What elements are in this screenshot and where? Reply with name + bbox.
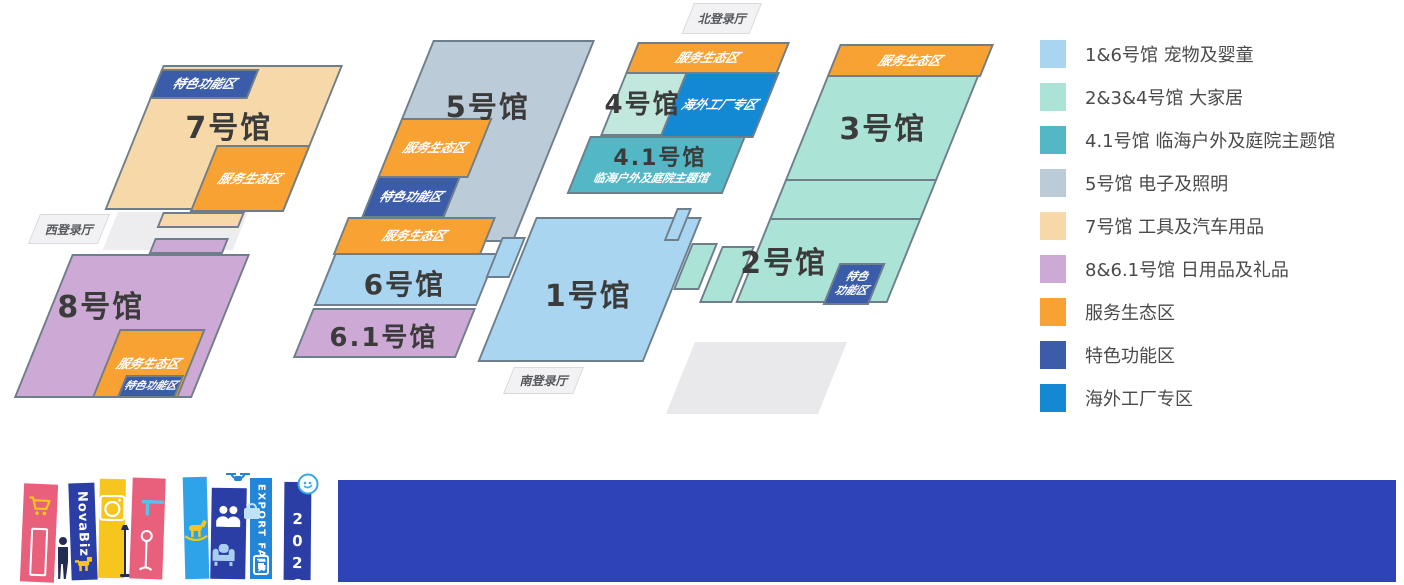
hall41-name: 4.1号馆 — [584, 140, 736, 172]
entrance-west-label: 西登录厅 — [45, 221, 93, 238]
service-zone-label: 服务生态区 — [673, 50, 742, 66]
service-zone-label: 服务生态区 — [114, 356, 183, 372]
fair-year: 2026 — [288, 510, 307, 580]
hall4-name: 4号馆 — [582, 84, 704, 121]
hall3-divider-a — [785, 179, 938, 181]
banner-toys — [183, 477, 210, 580]
legend: 1&6号馆 宠物及婴童 2&3&4号馆 大家居 4.1号馆 临海户外及庭院主题馆… — [1040, 40, 1335, 427]
hall1-name: 1号馆 — [507, 271, 669, 315]
hall5-service-zone: 服务生态区 — [377, 118, 492, 178]
entrance-north: 北登录厅 — [681, 3, 762, 34]
appliance-icon — [253, 555, 269, 575]
legend-swatch — [1040, 384, 1066, 412]
legend-swatch — [1040, 169, 1066, 197]
legend-swatch — [1040, 212, 1066, 240]
hall5-special-zone: 特色功能区 — [361, 176, 461, 218]
hall7-service-zone: 服务生态区 — [190, 145, 311, 212]
chat-logo-icon — [297, 473, 319, 495]
shopping-bag-icon — [242, 502, 262, 520]
hall2-name: 2号馆 — [727, 238, 841, 282]
hall-7[interactable]: 特色功能区 服务生态区 7号馆 — [104, 65, 343, 210]
legend-row: 5号馆 电子及照明 — [1040, 169, 1335, 197]
hall4-service-zone: 服务生态区 — [625, 42, 790, 74]
legend-row: 4.1号馆 临海户外及庭院主题馆 — [1040, 126, 1335, 154]
legend-swatch — [1040, 341, 1066, 369]
special-zone-label: 特色功能区 — [170, 76, 239, 92]
hall41-subtitle: 临海户外及庭院主题馆 — [573, 170, 729, 186]
drone-icon — [224, 470, 252, 486]
legend-swatch — [1040, 255, 1066, 283]
hall-6-1[interactable]: 6.1号馆 — [293, 308, 476, 358]
legend-label: 8&6.1号馆 日用品及礼品 — [1085, 256, 1289, 282]
legend-swatch — [1040, 126, 1066, 154]
door-icon — [29, 528, 48, 577]
legend-row: 服务生态区 — [1040, 298, 1335, 326]
hall7-connector — [157, 212, 245, 228]
special-zone-label: 特色功能区 — [122, 380, 180, 393]
floor-lamp-icon — [137, 530, 154, 573]
entrance-south-label: 南登录厅 — [520, 372, 568, 389]
hall-8[interactable]: 服务生态区 特色功能区 8号馆 — [14, 254, 250, 398]
person-icon — [56, 536, 70, 580]
special-zone-label: 特色功能区 — [377, 189, 446, 205]
legend-swatch — [1040, 40, 1066, 68]
hall7-name: 7号馆 — [141, 103, 317, 147]
rocking-horse-icon — [183, 517, 210, 542]
service-zone-label: 服务生态区 — [400, 140, 469, 156]
hall7-special-zone: 特色功能区 — [149, 69, 259, 99]
exhibition-floor-map: 西登录厅 特色功能区 服务生态区 7号馆 服务生态区 特色功能区 8号馆 服务生… — [0, 0, 1404, 585]
legend-label: 4.1号馆 临海户外及庭院主题馆 — [1085, 127, 1335, 153]
cart-icon — [28, 496, 51, 517]
armchair-icon — [210, 544, 236, 567]
washing-machine-icon — [99, 495, 125, 521]
hall5-name: 5号馆 — [409, 84, 567, 126]
shelf-icon — [141, 500, 164, 517]
banner-novabiz: NovaBiz — [68, 483, 97, 581]
banner-shop — [20, 483, 58, 582]
hall-4-1[interactable]: 4.1号馆 临海户外及庭院主题馆 — [567, 136, 746, 194]
legend-row: 7号馆 工具及汽车用品 — [1040, 212, 1335, 240]
service-zone-label: 服务生态区 — [876, 53, 945, 69]
legend-label: 海外工厂专区 — [1085, 385, 1193, 411]
hall3-name: 3号馆 — [809, 104, 957, 148]
hall8-name: 8号馆 — [34, 282, 168, 326]
banner-year: 2026 — [284, 482, 312, 580]
dog-icon — [74, 557, 95, 573]
hall6-service-zone: 服务生态区 — [333, 217, 496, 255]
banner-home — [129, 477, 166, 579]
hall8-special-zone: 特色功能区 — [117, 375, 184, 398]
legend-row: 8&6.1号馆 日用品及礼品 — [1040, 255, 1335, 283]
hall61-name: 6.1号馆 — [304, 317, 463, 354]
legend-swatch — [1040, 83, 1066, 111]
entrance-south: 南登录厅 — [503, 367, 584, 394]
hall-6[interactable]: 6号馆 — [314, 253, 498, 306]
special-zone-label: 特色 功能区 — [832, 270, 876, 298]
service-zone-label: 服务生态区 — [380, 228, 449, 244]
legend-label: 7号馆 工具及汽车用品 — [1085, 213, 1264, 239]
hall3-service-zone: 服务生态区 — [827, 44, 994, 77]
legend-label: 服务生态区 — [1085, 299, 1175, 325]
legend-label: 1&6号馆 宠物及婴童 — [1085, 41, 1254, 67]
service-zone-label: 服务生态区 — [216, 171, 285, 187]
legend-row: 1&6号馆 宠物及婴童 — [1040, 40, 1335, 68]
legend-swatch — [1040, 298, 1066, 326]
footer-bar — [338, 480, 1396, 582]
hall8-connector — [149, 238, 229, 254]
banner-export-fair: EXPORT FAIR — [250, 478, 272, 579]
hall-5[interactable]: 服务生态区 特色功能区 5号馆 — [351, 40, 595, 242]
legend-row: 特色功能区 — [1040, 341, 1335, 369]
legend-label: 5号馆 电子及照明 — [1085, 170, 1228, 196]
entrance-north-label: 北登录厅 — [698, 10, 746, 27]
hall3-divider-b — [769, 218, 922, 220]
legend-row: 海外工厂专区 — [1040, 384, 1335, 412]
legend-label: 特色功能区 — [1085, 342, 1175, 368]
entrance-west: 西登录厅 — [28, 214, 110, 244]
service-pad — [666, 342, 847, 414]
legend-label: 2&3&4号馆 大家居 — [1085, 84, 1243, 110]
hall6-name: 6号馆 — [325, 263, 484, 303]
people-icon — [215, 505, 241, 527]
hall-4[interactable]: 服务生态区 海外工厂专区 4号馆 — [600, 42, 788, 136]
legend-row: 2&3&4号馆 大家居 — [1040, 83, 1335, 111]
